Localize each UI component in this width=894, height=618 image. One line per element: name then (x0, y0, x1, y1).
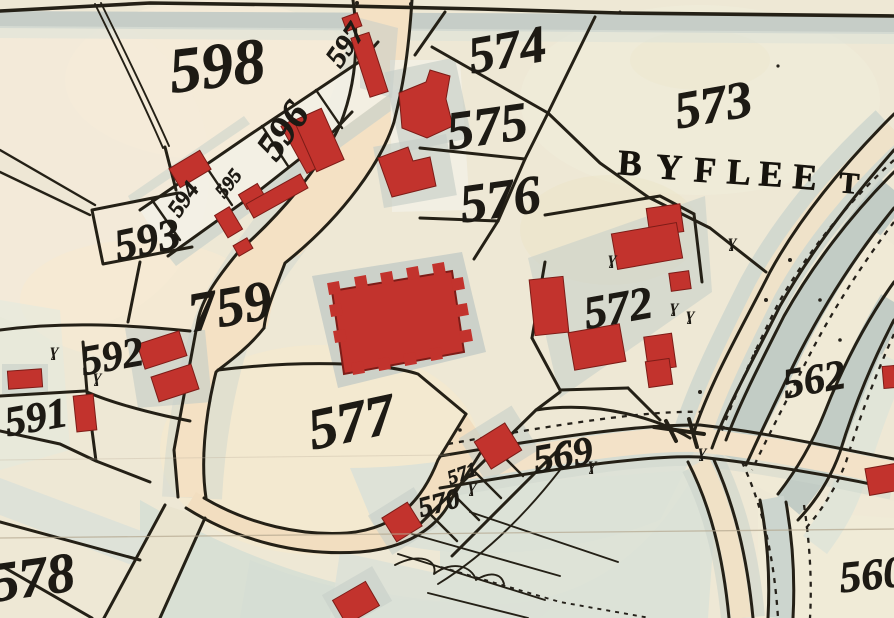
svg-text:ɣ: ɣ (608, 248, 618, 268)
svg-text:575: 575 (443, 91, 532, 162)
svg-text:ɣ: ɣ (728, 231, 738, 251)
svg-text:ɣ: ɣ (50, 340, 60, 360)
svg-text:T: T (838, 166, 861, 201)
svg-text:ɣ: ɣ (93, 366, 103, 386)
svg-text:ɣ: ɣ (686, 304, 696, 324)
svg-text:ɣ: ɣ (698, 441, 708, 461)
svg-text:ɣ: ɣ (468, 476, 478, 496)
svg-text:ɣ: ɣ (670, 296, 680, 316)
svg-text:L: L (726, 151, 753, 193)
svg-text:Y: Y (655, 146, 684, 188)
svg-text:E: E (758, 153, 785, 195)
svg-text:598: 598 (165, 24, 269, 106)
svg-text:E: E (791, 156, 818, 198)
svg-text:560: 560 (837, 547, 894, 603)
svg-text:F: F (693, 149, 718, 190)
svg-text:B: B (617, 142, 644, 184)
svg-text:578: 578 (0, 541, 79, 614)
svg-text:ɣ: ɣ (588, 454, 598, 474)
svg-text:576: 576 (456, 164, 545, 235)
